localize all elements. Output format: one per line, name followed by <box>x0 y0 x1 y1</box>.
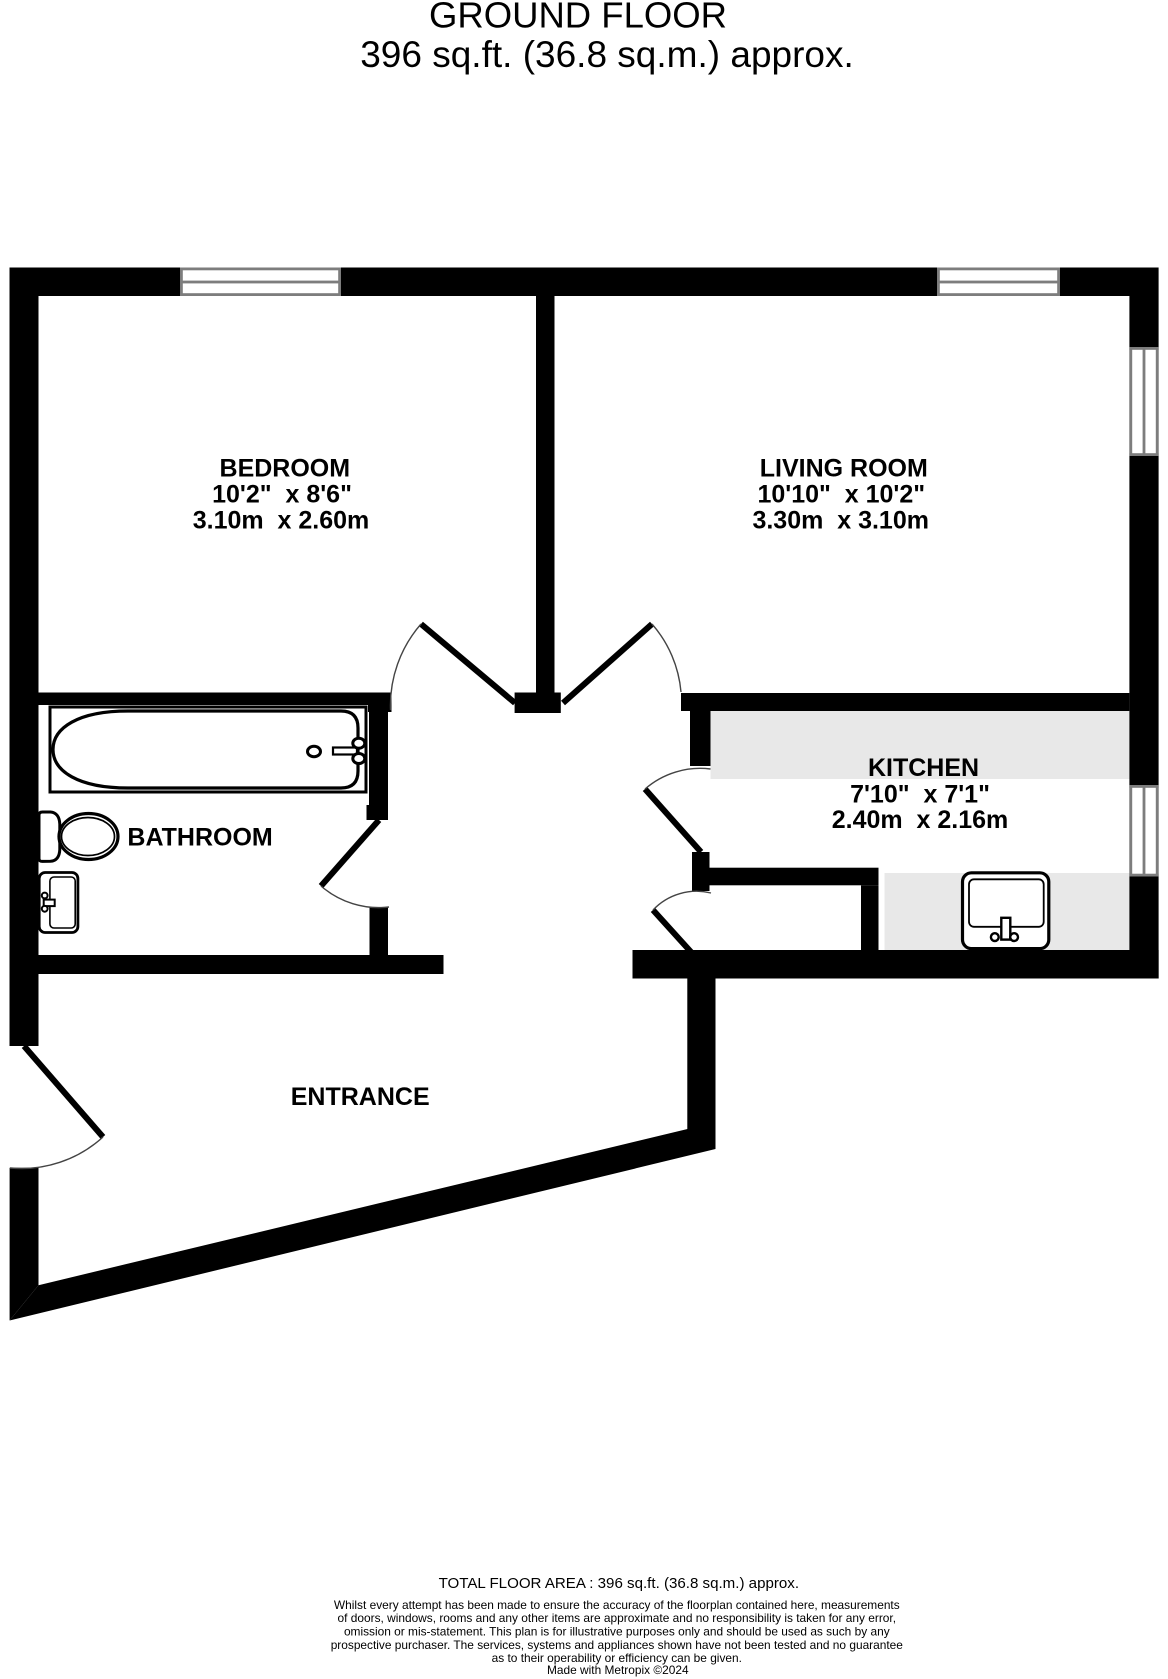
svg-text:ENTRANCE: ENTRANCE <box>291 1083 430 1111</box>
svg-text:TOTAL FLOOR AREA : 396 sq.ft.: TOTAL FLOOR AREA : 396 sq.ft. (36.8 sq.m… <box>439 1575 799 1592</box>
svg-text:GROUND FLOOR: GROUND FLOOR <box>429 0 727 36</box>
svg-text:KITCHEN: KITCHEN <box>868 754 979 782</box>
svg-text:LIVING ROOM: LIVING ROOM <box>760 454 928 482</box>
svg-text:10'10" x 10'2": 10'10" x 10'2" <box>757 481 925 509</box>
svg-text:10'2" x 8'6": 10'2" x 8'6" <box>212 481 352 509</box>
svg-text:396 sq.ft. (36.8 sq.m.) approx: 396 sq.ft. (36.8 sq.m.) approx. <box>360 34 854 75</box>
svg-text:7'10" x 7'1": 7'10" x 7'1" <box>850 781 990 809</box>
svg-text:Whilst every attempt has been: Whilst every attempt has been made to en… <box>334 1598 900 1612</box>
svg-text:3.30m x 3.10m: 3.30m x 3.10m <box>752 507 929 535</box>
svg-text:omission or mis-statement. Thi: omission or mis-statement. This plan is … <box>344 1625 890 1639</box>
svg-text:Made with Metropix ©2024: Made with Metropix ©2024 <box>547 1663 689 1677</box>
svg-text:prospective purchaser. The ser: prospective purchaser. The services, sys… <box>331 1638 904 1652</box>
svg-text:2.40m x 2.16m: 2.40m x 2.16m <box>832 806 1009 834</box>
svg-text:BATHROOM: BATHROOM <box>127 824 272 852</box>
svg-text:BEDROOM: BEDROOM <box>220 454 351 482</box>
svg-text:3.10m x 2.60m: 3.10m x 2.60m <box>193 507 370 535</box>
svg-text:of doors, windows, rooms and a: of doors, windows, rooms and any other i… <box>338 1611 896 1625</box>
